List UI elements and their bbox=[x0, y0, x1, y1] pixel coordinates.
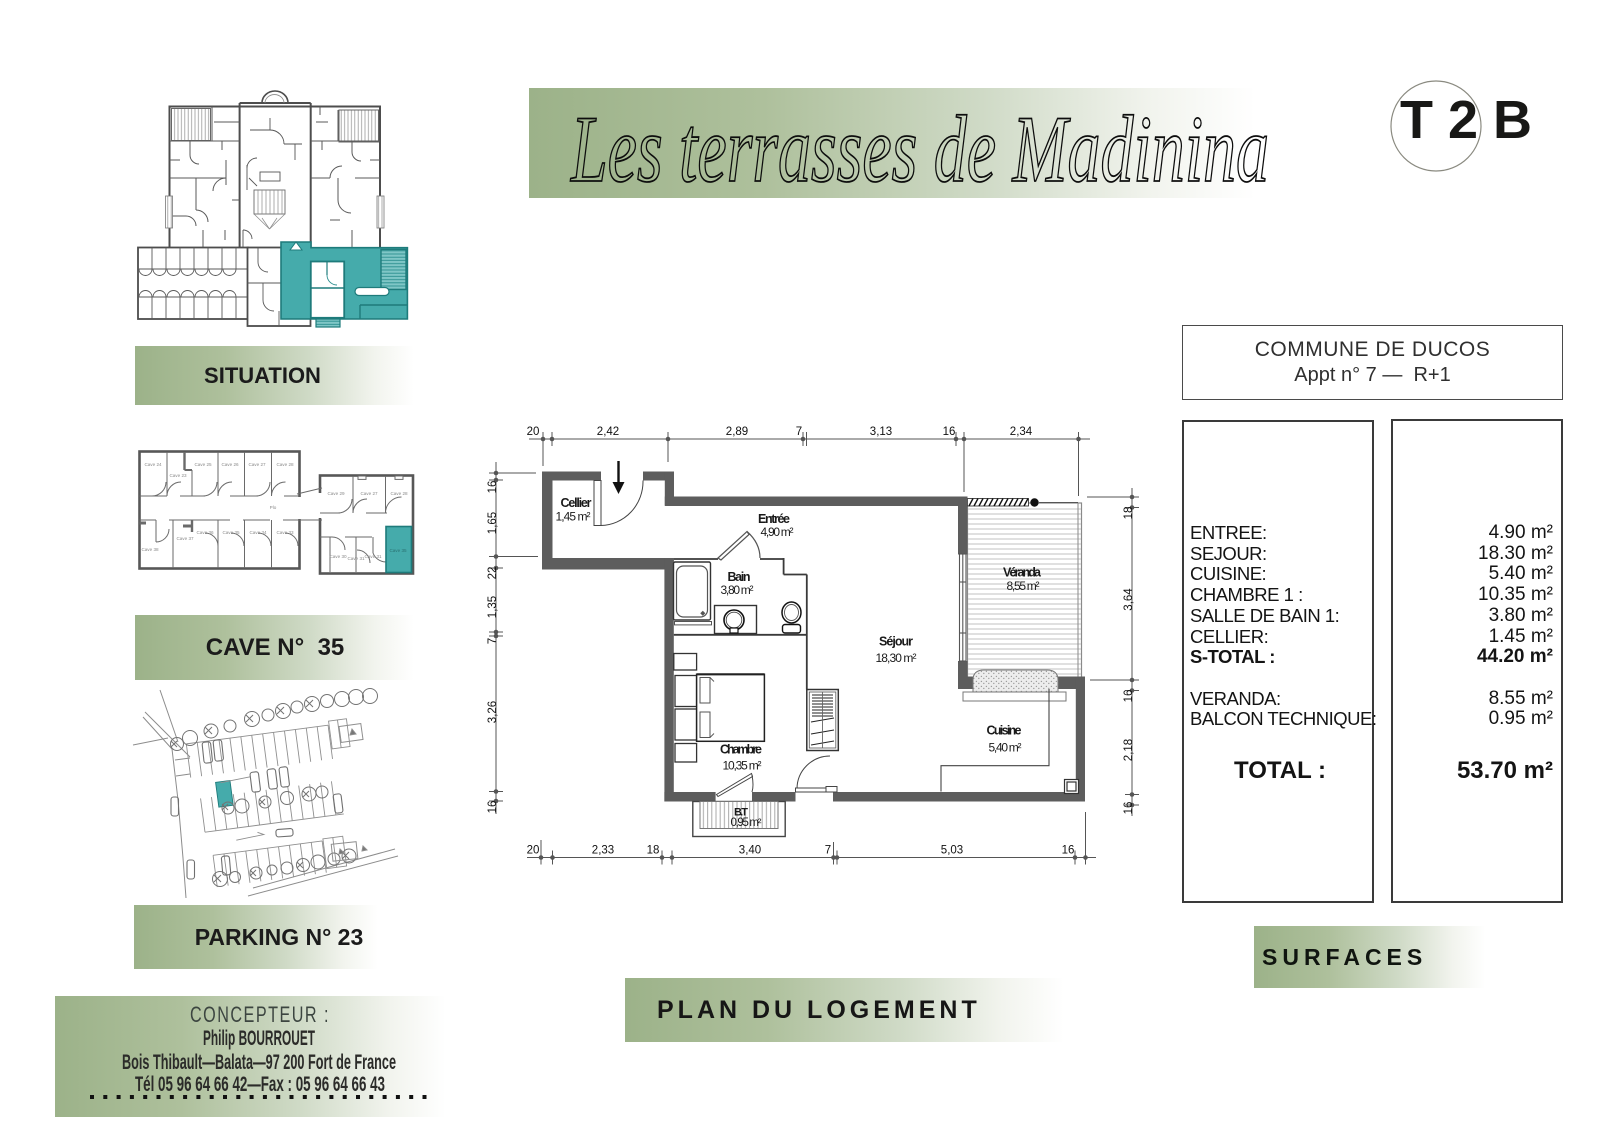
svg-text:2,89: 2,89 bbox=[726, 426, 748, 438]
svg-text:16: 16 bbox=[943, 426, 956, 438]
svg-text:Les terrasses de Madinina: Les terrasses de Madinina bbox=[570, 96, 1269, 198]
svg-text:3,13: 3,13 bbox=[870, 426, 892, 438]
svg-text:20: 20 bbox=[527, 845, 540, 857]
svg-text:5,03: 5,03 bbox=[941, 845, 963, 857]
svg-text:3,40: 3,40 bbox=[739, 845, 761, 857]
svg-text:16: 16 bbox=[1062, 845, 1075, 857]
svg-text:Cave 33: Cave 33 bbox=[276, 530, 294, 535]
svg-text:18,30 m²: 18,30 m² bbox=[876, 651, 917, 665]
svg-text:18: 18 bbox=[1123, 507, 1135, 520]
svg-text:Séjour: Séjour bbox=[879, 635, 913, 649]
svg-text:Chambre: Chambre bbox=[720, 743, 762, 757]
svg-text:Cave 31: Cave 31 bbox=[347, 556, 365, 561]
svg-text:Cave 27: Cave 27 bbox=[360, 491, 378, 496]
svg-text:7: 7 bbox=[825, 845, 831, 857]
svg-text:Cave 35: Cave 35 bbox=[389, 548, 407, 553]
svg-text:16: 16 bbox=[1123, 690, 1135, 703]
svg-text:Cave 23: Cave 23 bbox=[169, 473, 187, 478]
svg-text:8,55 m²: 8,55 m² bbox=[1007, 579, 1040, 593]
svg-text:Cave 24: Cave 24 bbox=[144, 462, 162, 467]
svg-text:Cave 34: Cave 34 bbox=[249, 530, 267, 535]
svg-text:7: 7 bbox=[487, 638, 499, 644]
svg-text:Cave 29: Cave 29 bbox=[327, 491, 345, 496]
svg-text:2,42: 2,42 bbox=[597, 426, 619, 438]
svg-text:2,33: 2,33 bbox=[592, 845, 614, 857]
svg-text:16: 16 bbox=[1123, 802, 1135, 815]
svg-text:3,80 m²: 3,80 m² bbox=[721, 583, 754, 597]
svg-text:4,90 m²: 4,90 m² bbox=[761, 525, 794, 539]
svg-text:2,34: 2,34 bbox=[1010, 426, 1033, 438]
svg-text:5,40 m²: 5,40 m² bbox=[989, 741, 1022, 755]
svg-text:Cave 31: Cave 31 bbox=[364, 554, 382, 559]
svg-text:18: 18 bbox=[647, 845, 660, 857]
svg-text:Cave 36: Cave 36 bbox=[196, 530, 214, 535]
svg-text:Cave 26: Cave 26 bbox=[221, 462, 239, 467]
svg-text:Cave 38: Cave 38 bbox=[141, 547, 159, 552]
svg-text:1,35: 1,35 bbox=[487, 596, 499, 618]
svg-text:3,64: 3,64 bbox=[1123, 588, 1135, 611]
svg-text:Bain: Bain bbox=[728, 570, 751, 584]
svg-text:Cave 28: Cave 28 bbox=[276, 462, 294, 467]
svg-text:2,18: 2,18 bbox=[1123, 739, 1135, 761]
svg-text:7: 7 bbox=[796, 426, 802, 438]
svg-text:Cave 27: Cave 27 bbox=[248, 462, 266, 467]
svg-text:10,35 m²: 10,35 m² bbox=[723, 759, 762, 773]
svg-text:1,65: 1,65 bbox=[487, 512, 499, 534]
svg-text:1,45 m²: 1,45 m² bbox=[556, 510, 591, 524]
svg-text:T 2 B: T 2 B bbox=[1400, 90, 1532, 150]
svg-text:Plo: Plo bbox=[270, 505, 277, 510]
svg-text:22: 22 bbox=[487, 567, 499, 580]
svg-text:Cellier: Cellier bbox=[561, 496, 592, 510]
svg-text:Philip BOURROUET: Philip BOURROUET bbox=[203, 1027, 315, 1050]
svg-text:Cave 35: Cave 35 bbox=[222, 530, 240, 535]
svg-text:16: 16 bbox=[487, 801, 499, 814]
svg-text:Véranda: Véranda bbox=[1003, 566, 1042, 580]
svg-text:CONCEPTEUR :: CONCEPTEUR : bbox=[190, 1002, 330, 1027]
svg-text:3,26: 3,26 bbox=[487, 701, 499, 723]
svg-text:Cuisine: Cuisine bbox=[987, 724, 1022, 738]
svg-text:Cave 28: Cave 28 bbox=[390, 491, 408, 496]
svg-text:Bois Thibault—Balata—97 200 Fo: Bois Thibault—Balata—97 200 Fort de Fran… bbox=[122, 1051, 396, 1074]
svg-text:16: 16 bbox=[487, 481, 499, 494]
svg-text:Cave 25: Cave 25 bbox=[194, 462, 212, 467]
svg-text:Entrée: Entrée bbox=[758, 512, 790, 526]
svg-text:Cave 37: Cave 37 bbox=[176, 536, 194, 541]
svg-text:Cave 30: Cave 30 bbox=[329, 554, 347, 559]
svg-text:20: 20 bbox=[527, 426, 540, 438]
svg-text:0,95 m²: 0,95 m² bbox=[731, 817, 762, 829]
